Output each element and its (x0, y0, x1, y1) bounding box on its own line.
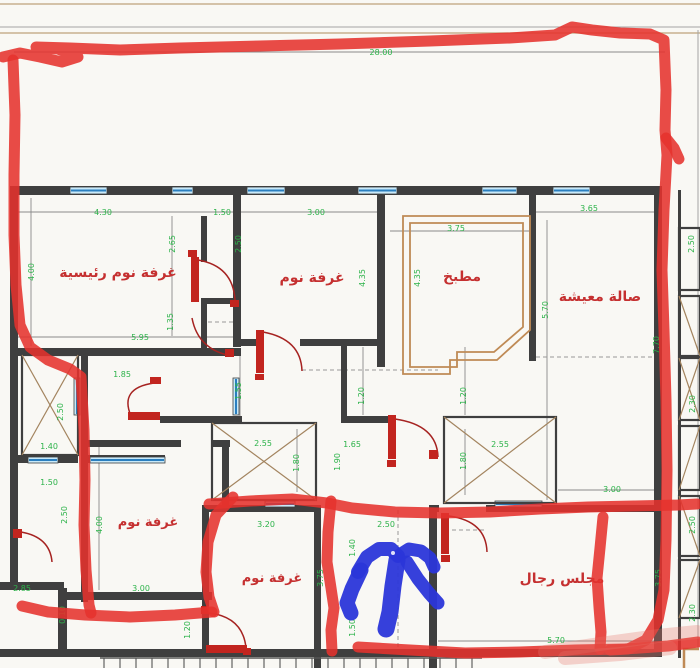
door-jamb (243, 648, 251, 655)
wall (429, 505, 437, 657)
red-marker-stroke (327, 501, 334, 651)
door-leaf (191, 257, 199, 302)
door-leaf (256, 330, 264, 373)
dimension-label: 3.00 (603, 485, 621, 494)
wall (300, 339, 383, 346)
wall (341, 345, 347, 423)
door-jamb (429, 450, 438, 459)
wall (237, 339, 259, 346)
dimension-label: 1.50 (40, 478, 58, 487)
dimension-label: 2.55 (254, 439, 272, 448)
floor-plan-svg: 28.004.301.503.003.753.654.002.652.504.3… (0, 0, 700, 668)
wall (85, 440, 181, 447)
floor-plan-page: 28.004.301.503.003.753.654.002.652.504.3… (0, 0, 700, 668)
dimension-label: 3.20 (257, 520, 275, 529)
dimension-label: 4.00 (95, 516, 104, 534)
wall (429, 655, 437, 668)
dimension-label: 1.20 (183, 621, 192, 639)
door-jamb (230, 300, 239, 307)
dimension-label: 1.55 (234, 382, 243, 400)
room-label: غرفة نوم (242, 571, 302, 586)
dimension-label: 5.95 (131, 333, 149, 342)
wall (201, 298, 207, 354)
dimension-label: 2.50 (56, 403, 65, 421)
door-leaf (206, 645, 247, 653)
door-leaf (128, 412, 160, 420)
dimension-label: 1.80 (459, 452, 468, 470)
dimension-label: 2.30 (688, 604, 697, 622)
dimension-label: 1.50 (213, 208, 231, 217)
dimension-label: 2.50 (377, 520, 395, 529)
dimension-label: 1.85 (113, 370, 131, 379)
room-label: صالة معيشة (559, 289, 641, 305)
door-leaf (225, 349, 234, 357)
dimension-label: 28.00 (370, 48, 393, 57)
door-jamb (387, 460, 396, 467)
dimension-label: 1.40 (40, 442, 58, 451)
wall (233, 195, 241, 347)
dimension-label: 1.20 (357, 387, 366, 405)
dimension-label: 4.30 (94, 208, 112, 217)
dimension-label: 2.30 (688, 395, 697, 413)
room-label: غرفة نوم (118, 515, 178, 530)
dimension-label: 2.50 (234, 235, 243, 253)
blue-marker-stroke (386, 560, 397, 629)
dimension-label: 2.50 (687, 235, 696, 253)
dimension-label: 2.65 (168, 235, 177, 253)
dimension-label: 5.70 (541, 301, 550, 319)
dimension-label: 3.75 (447, 224, 465, 233)
wall (314, 655, 321, 668)
dimension-label: 2.55 (491, 440, 509, 449)
door-jamb (255, 374, 264, 380)
door-leaf (388, 415, 396, 459)
room-label: مطبخ (443, 269, 481, 285)
dimension-label: 4.00 (27, 263, 36, 281)
wall (341, 416, 391, 423)
blue-marker-highlight-dot (391, 551, 395, 555)
door-leaf (441, 513, 449, 554)
dimension-label: 1.35 (166, 313, 175, 331)
dimension-label: 3.00 (307, 208, 325, 217)
dimension-label: 4.35 (413, 269, 422, 287)
dimension-label: 2.85 (13, 584, 31, 593)
dimension-label: 2.50 (688, 516, 697, 534)
door-jamb (188, 250, 197, 257)
wall (0, 582, 64, 590)
room-label: غرفة نوم (279, 270, 344, 286)
dimension-label: 4.35 (358, 269, 367, 287)
dimension-label: 2.50 (60, 506, 69, 524)
door-jamb (441, 555, 450, 562)
red-marker-stroke (597, 517, 603, 649)
door-jamb (150, 377, 161, 384)
door-leaf (13, 529, 22, 538)
dimension-label: 1.40 (348, 539, 357, 557)
dimension-label: 3.00 (132, 584, 150, 593)
dimension-label: 1.90 (333, 453, 342, 471)
wall (201, 216, 207, 262)
room-label: غرفة نوم رئيسية (59, 265, 176, 281)
dimension-label: 1.50 (348, 619, 357, 637)
dimension-label: 1.80 (292, 454, 301, 472)
dimension-label: 3.65 (580, 204, 598, 213)
dimension-label: 1.20 (459, 387, 468, 405)
dimension-label: 1.65 (343, 440, 361, 449)
